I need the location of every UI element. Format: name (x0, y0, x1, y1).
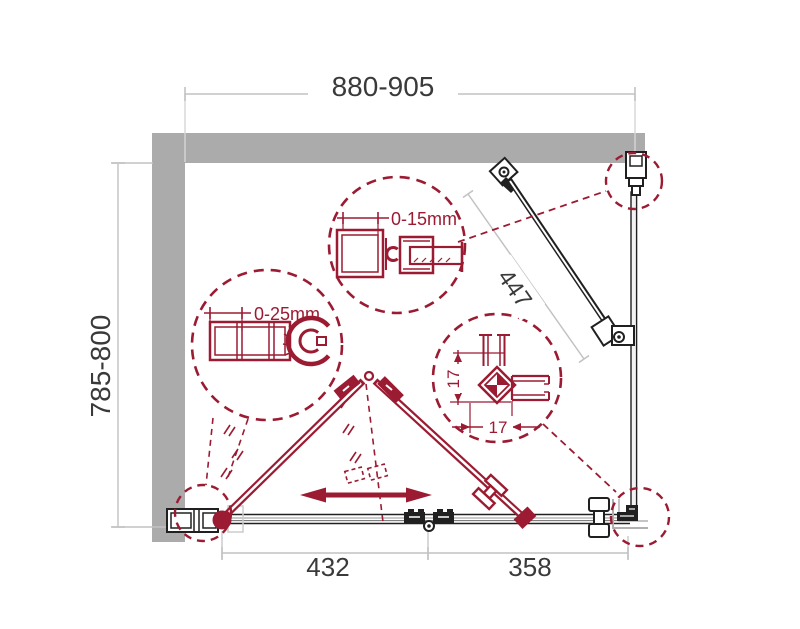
dim-depth-label: 785-800 (85, 315, 116, 418)
wall-top (152, 133, 645, 163)
dim-width-label: 880-905 (332, 71, 435, 102)
fixed-panel-glass (631, 192, 637, 512)
door-apex-hinge (365, 372, 373, 380)
corner-dim-vertical-label: 17 (444, 370, 463, 389)
detail-label-wall-adjustment: 0-15mm (391, 209, 457, 229)
dim-left-panel-label: 432 (306, 552, 349, 582)
dim-right-panel-label: 358 (508, 552, 551, 582)
corner-dim-horizontal-label: 17 (489, 418, 508, 437)
door-pivot-point (213, 511, 232, 530)
wall-left (152, 133, 185, 542)
plan-drawing-svg: 0-15mm 0-25mm (0, 0, 800, 629)
detail-label-pivot-adjustment: 0-25mm (254, 304, 320, 324)
technical-drawing-canvas: 0-15mm 0-25mm (0, 0, 800, 629)
